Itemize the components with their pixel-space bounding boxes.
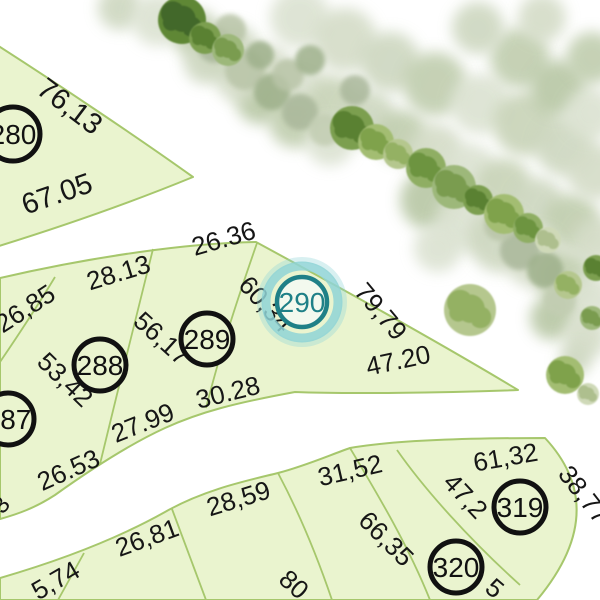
lot-number: 280 [0,119,36,150]
tree [212,34,244,66]
tree-blob-mid [246,41,274,69]
lot-number: 289 [184,324,231,355]
tree [444,284,496,336]
lot-marker-319[interactable]: 319 [494,481,546,533]
tree [577,383,599,405]
lot-marker-280[interactable]: 280 [0,107,40,161]
tree [535,227,561,253]
lot-number: 320 [433,552,480,583]
tree-blob-mid [340,75,370,105]
lot-marker-287[interactable]: 287 [0,393,34,445]
tree-blob-soft [414,224,462,272]
tree [546,356,584,394]
lot-marker-289[interactable]: 289 [181,313,233,365]
lot-number: 319 [497,492,544,523]
cadastral-map-svg: 76,1367.0526,8528.1326.3656,1753,4260,34… [0,0,600,600]
map-viewport[interactable]: 76,1367.0526,8528.1326.3656,1753,4260,34… [0,0,600,600]
tree-blob-mid [295,45,325,75]
tree [554,271,582,299]
lot-marker-288[interactable]: 288 [74,339,126,391]
lot-number: 287 [0,404,31,435]
lot-number: 288 [77,350,124,381]
lot-marker-320[interactable]: 320 [430,541,482,593]
lot-number: 290 [279,287,326,318]
tree-blob-soft [452,2,504,54]
